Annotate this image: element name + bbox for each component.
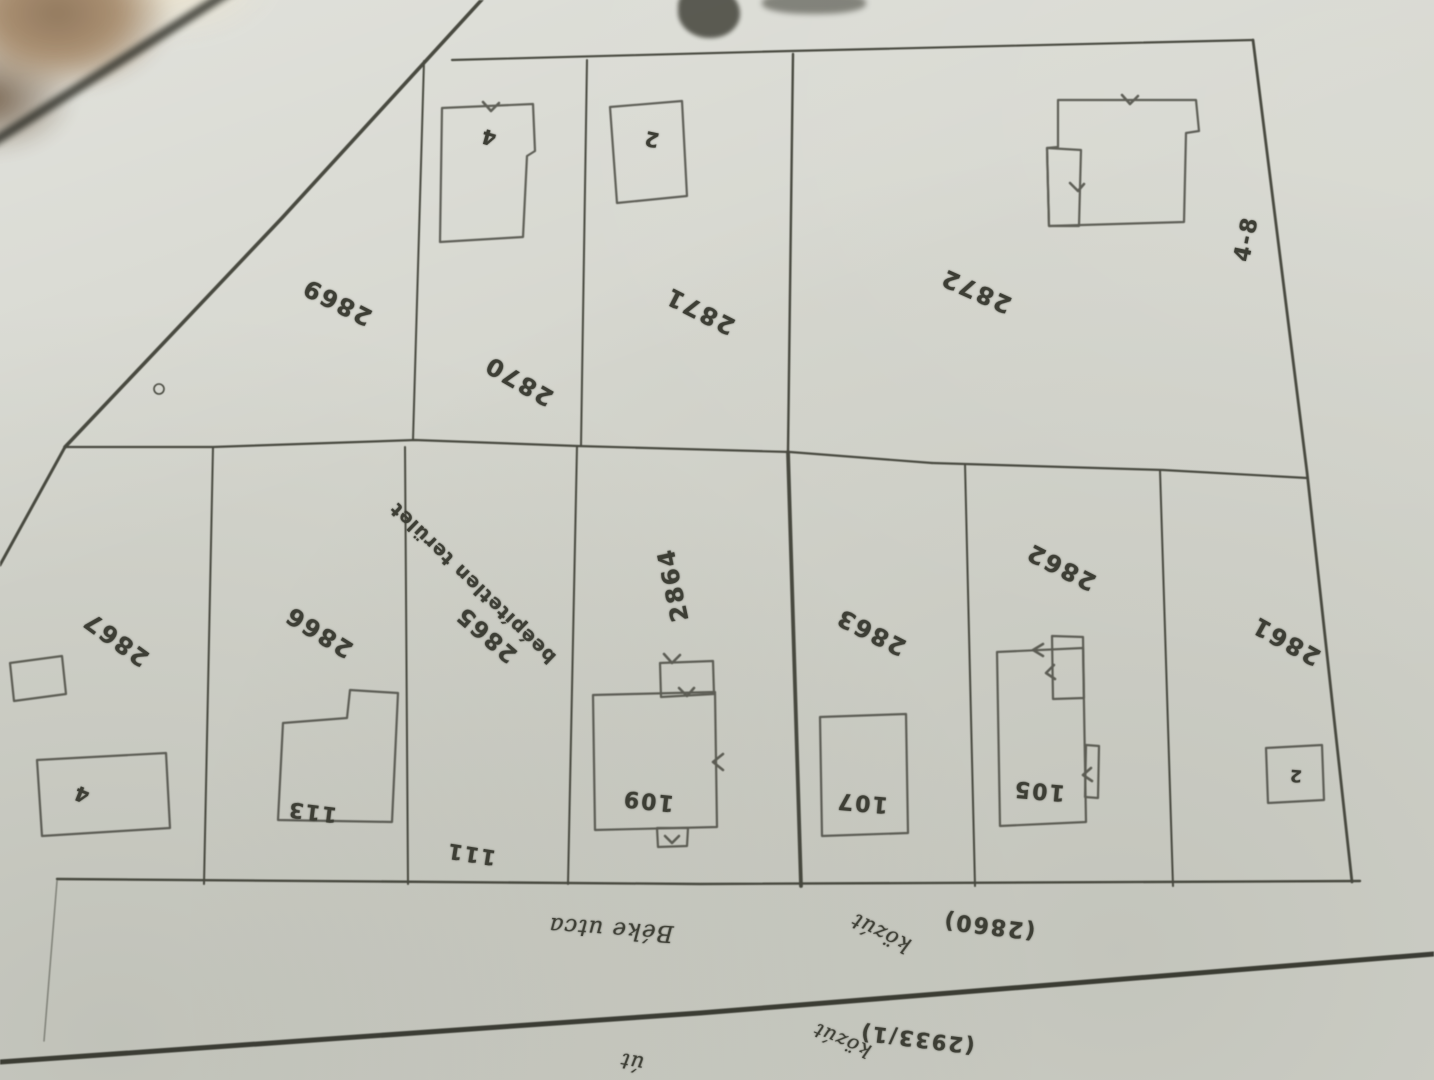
road-label-ut: út	[618, 1048, 646, 1076]
house-number-2-right: 2	[1287, 764, 1303, 785]
top-boundary	[452, 40, 1253, 60]
building-4-left-outline	[37, 753, 170, 836]
building-109-tick	[665, 836, 679, 843]
building-4-8-tick	[1070, 183, 1084, 191]
map-linework	[0, 0, 1434, 1080]
house-number-107: 107	[835, 787, 889, 816]
street-end-left	[44, 881, 57, 1041]
cadastral-map-photo: 2869 2870 2871 2872 2867 2866 2865 beépí…	[0, 0, 1434, 1080]
building-2-top-outline	[610, 101, 687, 203]
divider-2863-2862	[965, 464, 975, 886]
building-105-annex-top	[1052, 636, 1084, 699]
divider-2862-2861	[1160, 470, 1173, 886]
divider-2870-2871	[581, 60, 587, 446]
house-number-109: 109	[621, 785, 675, 815]
divider-2867-2866	[204, 447, 213, 884]
shed-2867-outline	[10, 656, 66, 701]
outer-boundary-left	[0, 447, 65, 565]
middle-boundary-left	[65, 440, 932, 463]
road-edge-bottom	[0, 954, 1434, 1062]
street-edge-top	[57, 879, 1360, 884]
building-4-8-outline	[1047, 100, 1199, 226]
boundary-point-marker	[154, 384, 164, 394]
building-109-tick	[713, 754, 723, 770]
outer-boundary-right	[1253, 40, 1352, 882]
divider-2864-2863	[788, 452, 801, 886]
middle-boundary-right	[932, 463, 1307, 478]
building-107-outline	[820, 714, 908, 836]
house-number-105: 105	[1012, 775, 1066, 804]
building-4-8-annex	[1047, 148, 1081, 226]
divider-2869-2870	[413, 61, 424, 440]
divider-2871-2872	[788, 54, 793, 452]
divider-2865-2864	[568, 446, 577, 884]
